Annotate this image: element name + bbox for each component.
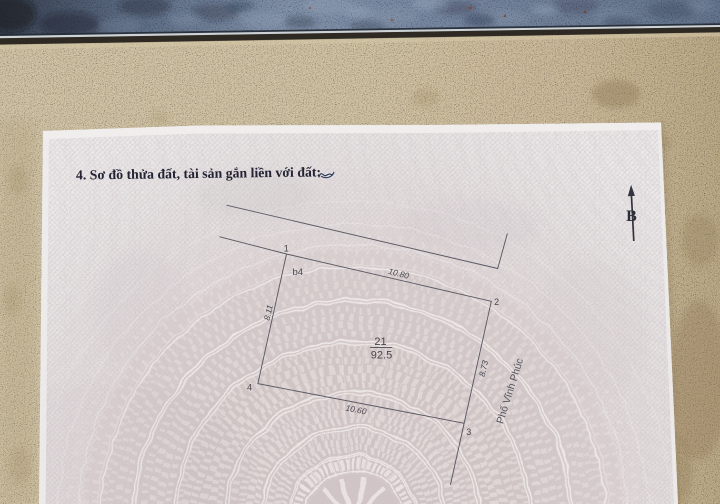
svg-text:2: 2 [494,297,499,307]
svg-text:21: 21 [374,336,386,348]
svg-text:4: 4 [247,383,252,393]
svg-text:B: B [626,208,637,225]
svg-text:3: 3 [466,427,471,437]
svg-text:1: 1 [284,244,289,254]
svg-text:4. Sơ đồ thửa đất, tài sản gắn: 4. Sơ đồ thửa đất, tài sản gắn liền với … [76,164,321,182]
svg-text:92.5: 92.5 [371,350,392,362]
svg-text:b4: b4 [293,267,304,278]
